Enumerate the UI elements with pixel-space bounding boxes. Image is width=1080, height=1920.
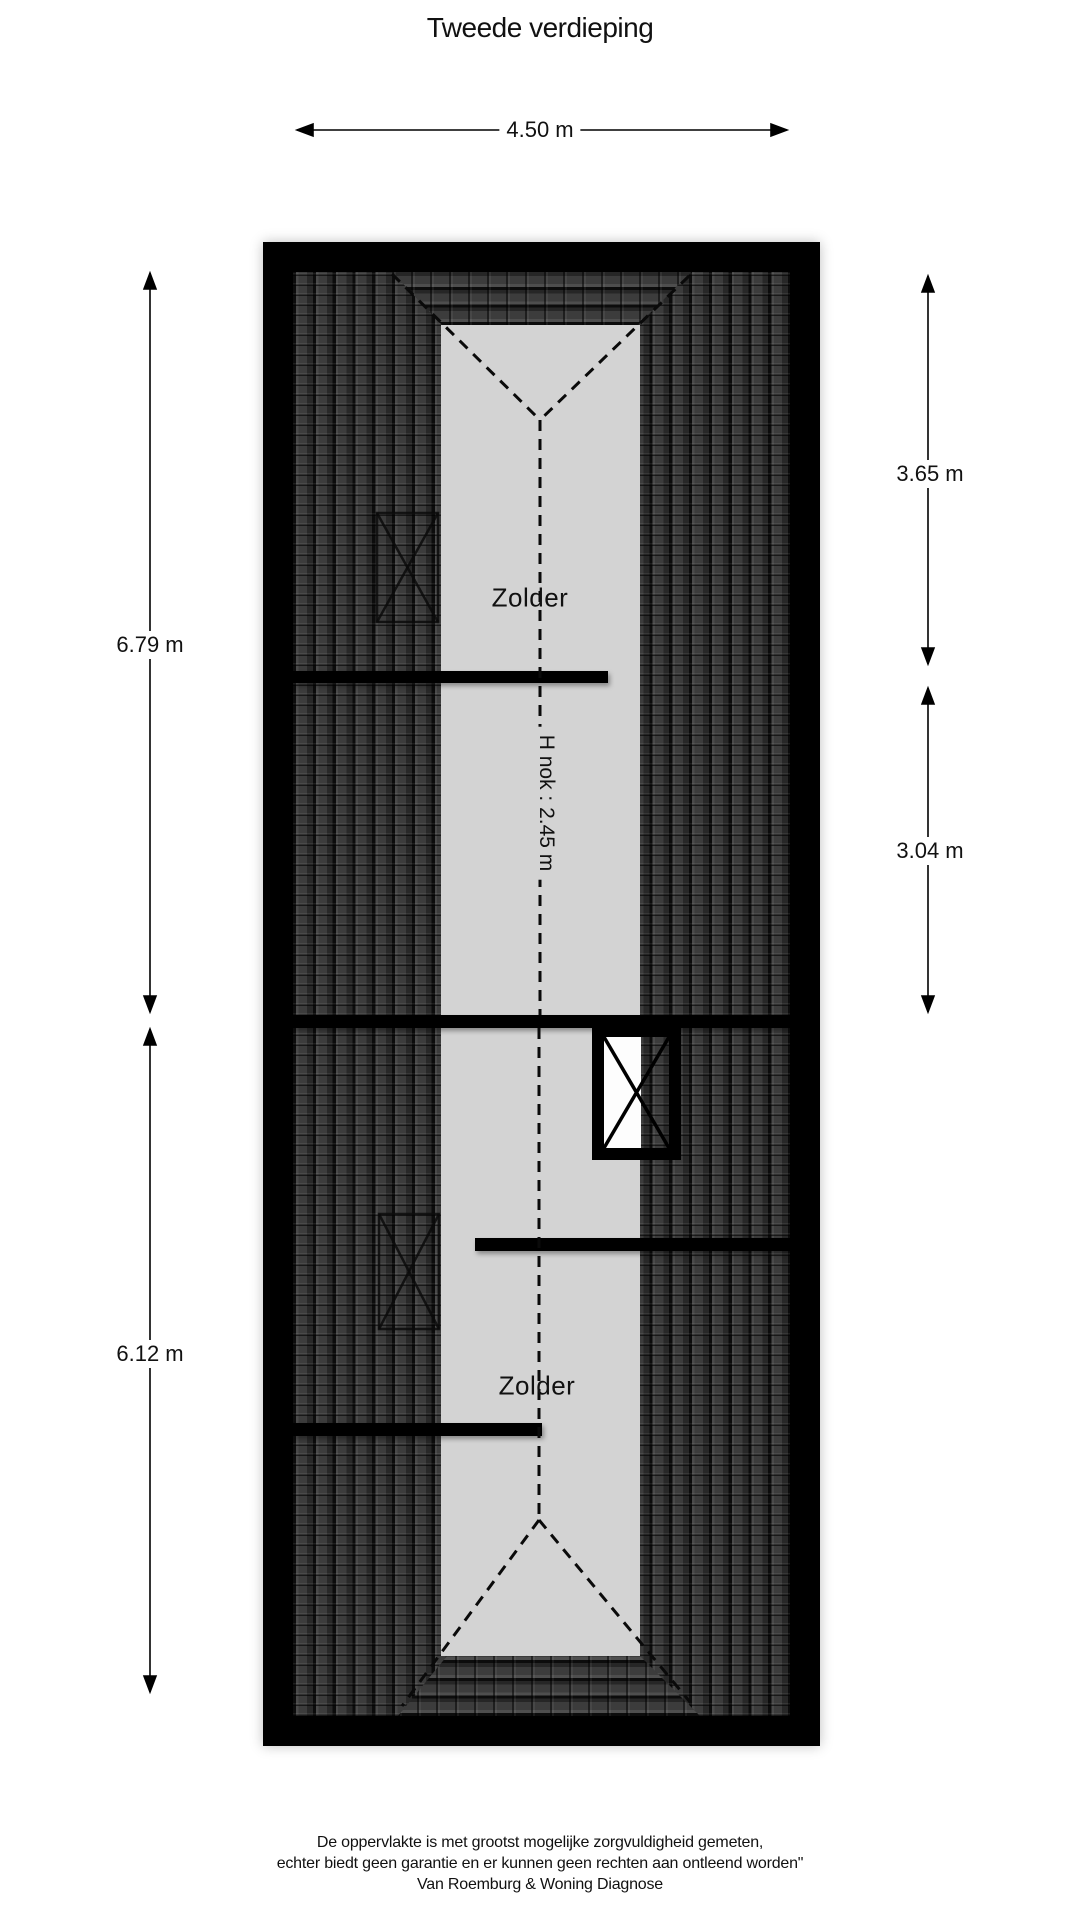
page-title: Tweede verdieping xyxy=(0,12,1080,44)
wall-segment-mid-right xyxy=(475,1238,790,1251)
footer-line-2: echter biedt geen garantie en er kunnen … xyxy=(0,1853,1080,1874)
dimension-label-right-lower: 3.04 m xyxy=(889,837,970,865)
dimension-label-width: 4.50 m xyxy=(499,116,580,144)
room-label-zolder-lower: Zolder xyxy=(499,1371,576,1402)
room-label-zolder-upper: Zolder xyxy=(492,583,569,614)
footer-line-1: De oppervlakte is met grootst mogelijke … xyxy=(0,1832,1080,1853)
floor-plan-page: Tweede verdieping xyxy=(0,0,1080,1920)
footer-disclaimer: De oppervlakte is met grootst mogelijke … xyxy=(0,1832,1080,1895)
attic-area-upper xyxy=(441,325,640,1015)
dimension-label-right-upper: 3.65 m xyxy=(889,460,970,488)
dimension-label-left-lower: 6.12 m xyxy=(109,1340,190,1368)
window-pane xyxy=(604,1037,641,1148)
wall-segment-upper xyxy=(293,671,608,683)
wall-segment-lower-left xyxy=(293,1423,542,1436)
dimension-label-left-upper: 6.79 m xyxy=(109,631,190,659)
ridge-height-label: H nok : 2.45 m xyxy=(534,727,558,880)
footer-line-3: Van Roemburg & Woning Diagnose xyxy=(0,1874,1080,1895)
wall-segment-middle xyxy=(293,1015,790,1028)
window-void-box xyxy=(592,1025,681,1160)
